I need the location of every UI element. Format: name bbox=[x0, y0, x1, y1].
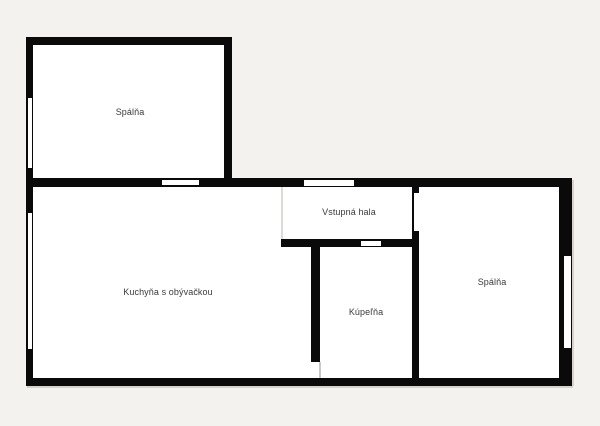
room-label-bedroom-top: Spálňa bbox=[116, 107, 145, 117]
door-bedroom-top-icon bbox=[162, 180, 199, 186]
wall-top-bedroom bbox=[26, 37, 232, 45]
door-hall-bedroom-icon bbox=[414, 193, 419, 231]
shadow-right bbox=[572, 180, 574, 386]
room-label-bathroom: Kúpeľňa bbox=[349, 307, 383, 317]
room-kitchen-living bbox=[33, 185, 313, 379]
floor-plan: Spálňa Vstupná hala Kuchyňa s obývačkou … bbox=[0, 0, 600, 426]
shadow-bottom bbox=[27, 386, 573, 388]
door-jamb-line bbox=[319, 362, 321, 378]
door-hall-entry-icon bbox=[304, 180, 354, 186]
wall-bathroom-left bbox=[311, 246, 320, 362]
wall-bedroom-top-right bbox=[224, 37, 232, 186]
wall-outer-bottom bbox=[26, 378, 572, 386]
window-kitchen-icon bbox=[28, 213, 33, 349]
wall-main-horizontal bbox=[26, 178, 572, 187]
room-label-bedroom-right: Spálňa bbox=[478, 277, 507, 287]
door-hall-bathroom-icon bbox=[361, 241, 381, 246]
room-label-entrance-hall: Vstupná hala bbox=[322, 207, 376, 217]
window-bedroom-top-icon bbox=[28, 98, 33, 168]
window-bedroom-right-icon bbox=[564, 256, 571, 348]
wall-hall-bottom bbox=[281, 239, 419, 247]
open-boundary-line bbox=[281, 186, 283, 239]
room-label-kitchen-living: Kuchyňa s obývačkou bbox=[123, 287, 212, 297]
